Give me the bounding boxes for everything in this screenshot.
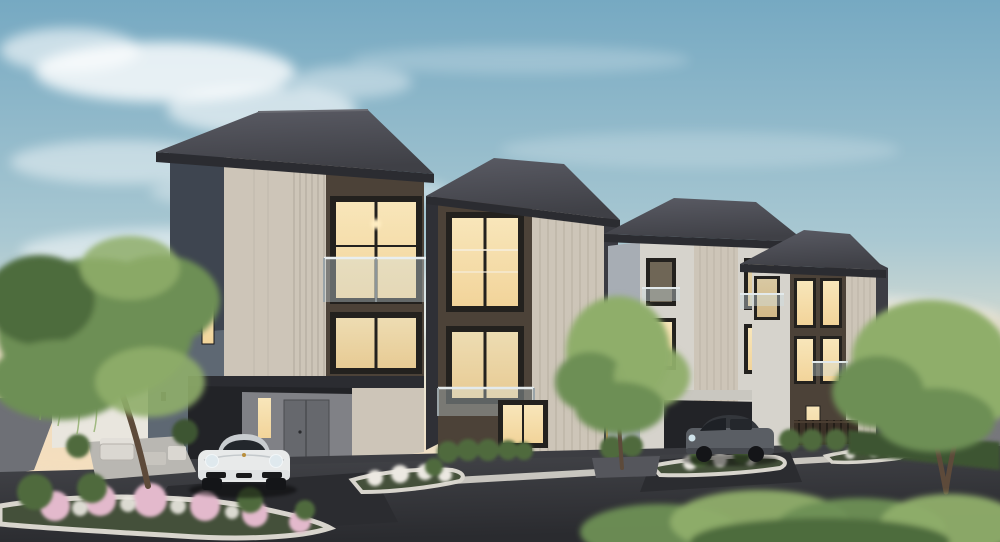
island-shrub [425,458,443,476]
bumper-intake [236,473,252,478]
patio-chair [168,446,186,460]
edge-strip [426,196,438,450]
bumper-intake [206,472,226,478]
wheel [266,478,286,490]
door-sidelight [258,398,271,438]
planter [592,456,660,478]
headlight-left [206,455,219,468]
outdoor-sofa [100,444,134,460]
chandelier-glow [371,219,381,229]
wheel [202,478,222,490]
topiary [66,434,90,458]
window-2f [330,312,422,374]
balcony-window-3f [324,196,428,304]
headlight-right [270,455,283,468]
suv-wheel [748,446,764,462]
suv-side-window [730,419,752,430]
door-handle [298,430,301,433]
window-3f [446,212,524,312]
carport-lintel [188,376,424,388]
hood-badge [242,453,246,457]
suv-headlight [689,435,696,442]
bumper-intake [262,472,282,478]
suv-wheel [696,446,712,462]
topiary [172,419,198,445]
render-canvas [0,0,1000,542]
tree-canopy [0,236,220,420]
townhome-scene [0,0,1000,542]
